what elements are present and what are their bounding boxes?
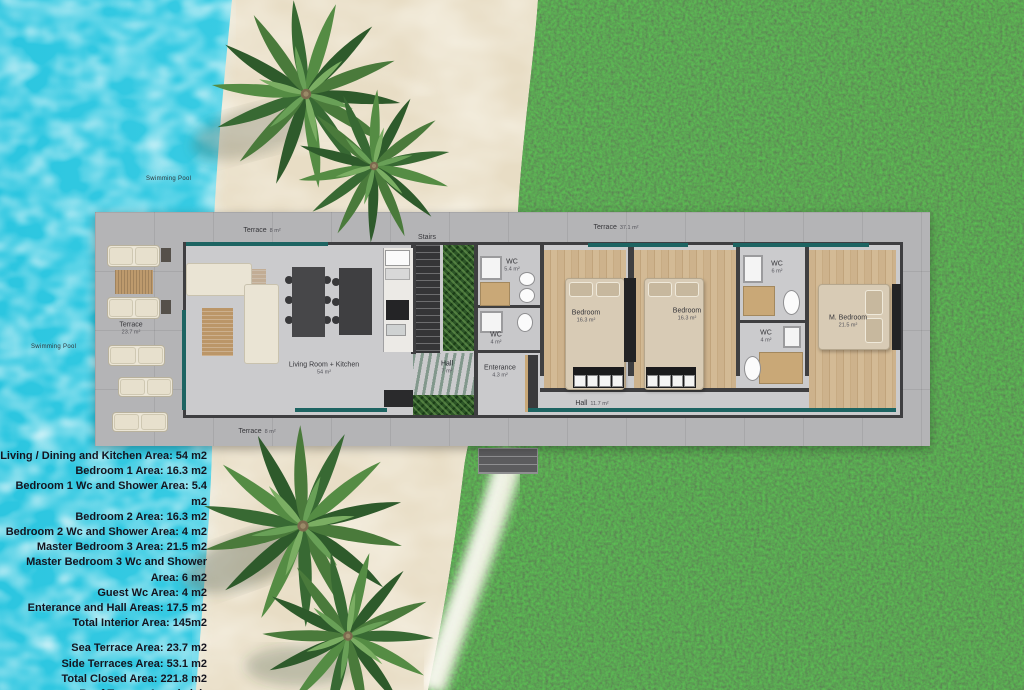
entrance-wardrobe	[525, 355, 538, 412]
interior-areas-list: Living / Dining and Kitchen Area: 54 m2B…	[0, 449, 207, 631]
wardrobe	[646, 367, 696, 388]
rug	[202, 308, 233, 356]
sun-lounger	[112, 412, 168, 432]
stairs	[413, 245, 440, 353]
legend-line: Bedroom 1 Area: 16.3 m2	[0, 464, 207, 479]
tv-unit	[384, 390, 413, 407]
pillow	[675, 282, 699, 297]
pillow	[865, 318, 883, 343]
sofa	[244, 284, 279, 364]
green-wall	[443, 245, 474, 351]
oven	[385, 268, 410, 280]
sun-lounger	[118, 377, 173, 397]
room-label-bedroom1: Bedroom16.3 m²	[572, 310, 600, 325]
dining-table	[292, 267, 325, 337]
glass-wall	[733, 243, 869, 247]
sofa	[186, 263, 252, 296]
vanity-counter	[759, 352, 803, 384]
area-legend: Living / Dining and Kitchen Area: 54 m2B…	[0, 449, 207, 690]
vanity-counter	[743, 286, 775, 316]
exterior-areas-list: Sea Terrace Area: 23.7 m2Side Terraces A…	[0, 641, 207, 690]
shower	[480, 311, 503, 333]
lounger-mat	[115, 270, 153, 294]
headboard	[892, 284, 901, 350]
glass-wall	[528, 408, 896, 412]
fridge	[385, 250, 410, 266]
legend-line: Master Bedroom 3 Area: 21.5 m2	[0, 540, 207, 555]
washbasin	[519, 272, 535, 286]
room-label-stairs: Stairs	[418, 234, 436, 242]
room-label-terrace-top: Terrace8 m²	[243, 227, 280, 235]
wall	[805, 245, 809, 376]
room-label-hall-small: Hall7 m²	[441, 361, 453, 376]
swimming-pool-label: Swimming Pool	[31, 344, 76, 350]
floor-plan: Terrace8 m² Terrace37.1 m² Terrace8 m² T…	[95, 212, 930, 446]
room-label-master-bedroom: M. Bedroom21.5 m²	[829, 315, 867, 330]
toilet	[783, 290, 800, 315]
legend-line: Total Closed Area: 221.8 m2	[0, 672, 207, 687]
glass-wall	[588, 243, 688, 247]
legend-line: Total Interior Area: 145m2	[0, 616, 207, 631]
washbasin	[783, 326, 801, 348]
sun-lounger	[107, 297, 160, 319]
entrance-steps	[478, 448, 538, 474]
legend-line: Guest Wc Area: 4 m2	[0, 586, 207, 601]
glass-wall	[182, 310, 186, 410]
swimming-pool-label: Swimming Pool	[146, 176, 191, 182]
room-label-wc-master: WC6 m²	[771, 261, 783, 276]
pillow	[596, 282, 620, 297]
villa-floorplan-scene: { "scene": { "pool_label_top": "Swimming…	[0, 0, 1024, 690]
room-label-bedroom2: Bedroom16.3 m²	[673, 308, 701, 323]
legend-line: Sea Terrace Area: 23.7 m2	[0, 641, 207, 656]
green-wall	[413, 395, 474, 415]
cooktop	[386, 300, 409, 320]
legend-line: Side Terraces Area: 53.1 m2	[0, 657, 207, 672]
wall	[540, 242, 544, 376]
shower	[743, 255, 763, 283]
sun-lounger	[107, 245, 160, 267]
wall	[736, 245, 740, 376]
wardrobe	[573, 367, 624, 388]
sun-lounger	[108, 345, 165, 366]
pillow	[569, 282, 593, 297]
legend-line: Bedroom 1 Wc and Shower Area: 5.4 m2	[0, 479, 207, 509]
kitchen-island	[339, 268, 372, 335]
toilet	[744, 356, 761, 381]
wall	[474, 242, 478, 418]
legend-line: Master Bedroom 3 Wc and Shower Area: 6 m…	[0, 555, 207, 585]
room-label-wc-guest: WC4 m²	[760, 330, 772, 345]
pillow	[865, 290, 883, 315]
room-label-wc2: WC4 m²	[490, 332, 502, 347]
sink	[386, 324, 406, 336]
glass-wall	[295, 408, 387, 412]
room-label-terrace-right: Terrace37.1 m²	[594, 224, 639, 232]
shower	[480, 256, 502, 280]
room-label-terrace-sea: Terrace23.7 m²	[119, 322, 142, 337]
vanity-counter	[480, 282, 510, 306]
room-label-terrace-bottom: Terrace8 m²	[238, 428, 275, 436]
room-label-hall-main: Hall11.7 m²	[575, 400, 608, 408]
room-label-wc1: WC5.4 m²	[504, 259, 520, 274]
room-label-entrance: Enterance4.3 m²	[484, 365, 516, 380]
legend-line: Enterance and Hall Areas: 17.5 m2	[0, 601, 207, 616]
side-table	[161, 248, 171, 262]
pillow	[648, 282, 672, 297]
glass-wall	[186, 242, 328, 246]
wall	[476, 350, 540, 353]
side-table	[161, 300, 171, 314]
headboard	[624, 278, 636, 362]
legend-line: Bedroom 2 Area: 16.3 m2	[0, 510, 207, 525]
washbasin	[519, 288, 535, 303]
legend-line: Bedroom 2 Wc and Shower Area: 4 m2	[0, 525, 207, 540]
wall	[740, 320, 805, 323]
room-label-living: Living Room + Kitchen54 m²	[289, 362, 359, 377]
legend-line: Living / Dining and Kitchen Area: 54 m2	[0, 449, 207, 464]
toilet	[517, 313, 533, 332]
